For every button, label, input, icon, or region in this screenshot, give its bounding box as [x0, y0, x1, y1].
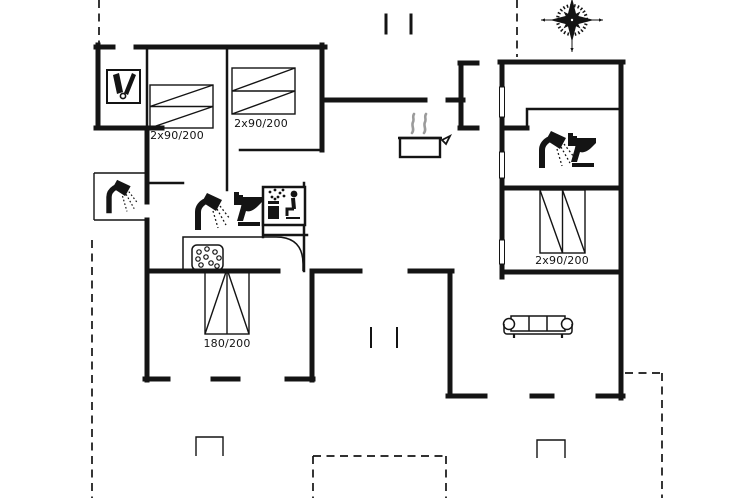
outdoor-shower-icon	[109, 180, 138, 213]
washroom-icon	[107, 70, 140, 103]
opening-marks	[371, 15, 411, 347]
bed-size-label-annex: 2x90/200	[150, 130, 204, 142]
sofa-icon	[504, 316, 573, 338]
compass-rose-icon	[541, 0, 603, 52]
terrace-dashed-outline	[92, 0, 662, 498]
shower-icon-bathroom-1	[198, 193, 230, 230]
entrance-steps	[196, 437, 565, 458]
bed-size-label-south: 180/200	[203, 338, 250, 350]
toilet-icon-bathroom-2	[568, 133, 596, 167]
outdoor-shower-alcove	[94, 173, 145, 220]
double-bed-south	[205, 272, 249, 334]
bed-size-label-right: 2x90/200	[535, 255, 589, 267]
stove-icon	[398, 114, 450, 157]
whirlpool-counter	[183, 237, 303, 271]
double-bed-right	[540, 190, 585, 253]
whirlpool-icon	[192, 245, 223, 270]
bed-size-label-middle: 2x90/200	[234, 118, 288, 130]
floor-plan-page: 2x90/200 2x90/200 2x90/200 180/200	[0, 0, 754, 498]
floor-plan-drawing	[0, 0, 754, 498]
toilet-icon-bathroom-1	[234, 192, 262, 226]
interior-walls	[147, 63, 619, 272]
double-bed-annex	[150, 85, 213, 128]
double-bed-middle	[232, 68, 295, 114]
sauna-icon	[263, 187, 305, 225]
